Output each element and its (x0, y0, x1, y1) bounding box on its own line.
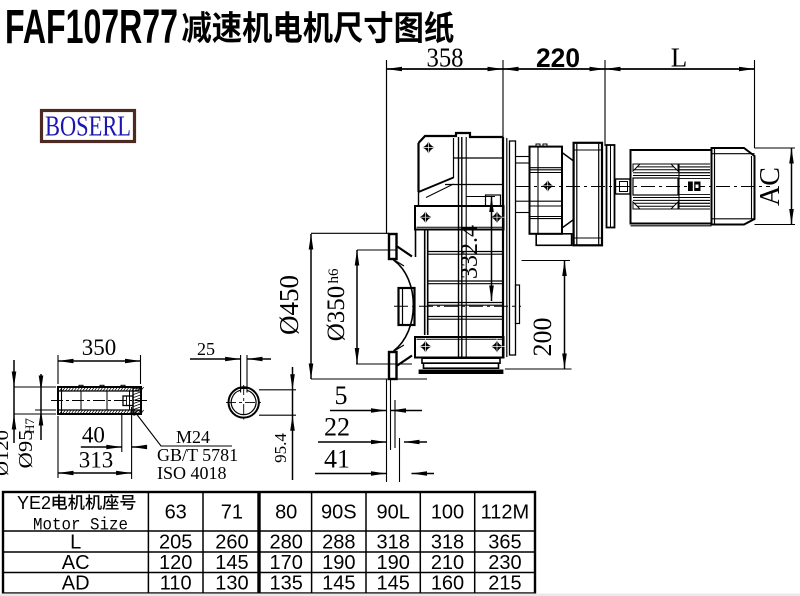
svg-text:FAF107R77: FAF107R77 (5, 1, 178, 54)
svg-text:YE2: YE2 (17, 493, 51, 513)
svg-text:Ø120: Ø120 (0, 430, 12, 476)
svg-text:90L: 90L (377, 502, 410, 524)
svg-text:h6: h6 (326, 268, 342, 284)
svg-text:AD: AD (62, 573, 90, 595)
svg-text:L: L (70, 532, 81, 554)
svg-text:5: 5 (335, 381, 348, 410)
svg-text:130: 130 (215, 573, 248, 595)
svg-text:BOSERL: BOSERL (45, 111, 131, 143)
svg-text:41: 41 (324, 445, 350, 474)
svg-text:ISO 4018: ISO 4018 (157, 463, 227, 483)
svg-text:M24: M24 (176, 427, 210, 447)
svg-text:200: 200 (528, 318, 557, 357)
svg-text:220: 220 (536, 43, 580, 73)
svg-text:318: 318 (377, 532, 410, 554)
svg-text:210: 210 (431, 552, 464, 574)
svg-text:GB/T 5781: GB/T 5781 (157, 445, 238, 465)
svg-text:H7: H7 (22, 418, 37, 434)
svg-text:22: 22 (324, 413, 350, 442)
svg-text:365: 365 (488, 532, 521, 554)
svg-text:63: 63 (165, 502, 187, 524)
svg-text:Ø450: Ø450 (274, 275, 304, 335)
svg-text:350: 350 (82, 335, 117, 360)
svg-text:190: 190 (377, 552, 410, 574)
svg-text:230: 230 (488, 552, 521, 574)
svg-text:Ø95: Ø95 (15, 430, 37, 469)
svg-text:160: 160 (431, 573, 464, 595)
svg-text:112M: 112M (481, 502, 530, 524)
svg-text:71: 71 (221, 502, 243, 524)
svg-text:Ø350: Ø350 (323, 286, 350, 342)
svg-text:260: 260 (215, 532, 248, 554)
svg-text:120: 120 (159, 552, 192, 574)
svg-text:145: 145 (322, 573, 355, 595)
svg-text:318: 318 (431, 532, 464, 554)
svg-text:AC: AC (62, 552, 90, 574)
svg-text:215: 215 (488, 573, 521, 595)
svg-text:280: 280 (270, 532, 303, 554)
svg-text:AC: AC (755, 167, 786, 206)
svg-text:288: 288 (322, 532, 355, 554)
svg-text:205: 205 (159, 532, 192, 554)
svg-text:313: 313 (79, 448, 114, 473)
svg-text:80: 80 (275, 502, 297, 524)
svg-text:135: 135 (270, 573, 303, 595)
svg-text:145: 145 (377, 573, 410, 595)
svg-text:100: 100 (431, 502, 464, 524)
svg-text:25: 25 (197, 339, 215, 359)
svg-text:95.4: 95.4 (271, 433, 290, 463)
svg-text:145: 145 (215, 552, 248, 574)
svg-text:332.4: 332.4 (457, 225, 483, 279)
svg-text:358: 358 (427, 43, 464, 73)
svg-text:170: 170 (270, 552, 303, 574)
svg-text:90S: 90S (321, 502, 357, 524)
svg-text:110: 110 (160, 573, 192, 595)
svg-text:190: 190 (322, 552, 355, 574)
svg-text:L: L (671, 43, 688, 73)
svg-text:40: 40 (82, 423, 105, 448)
